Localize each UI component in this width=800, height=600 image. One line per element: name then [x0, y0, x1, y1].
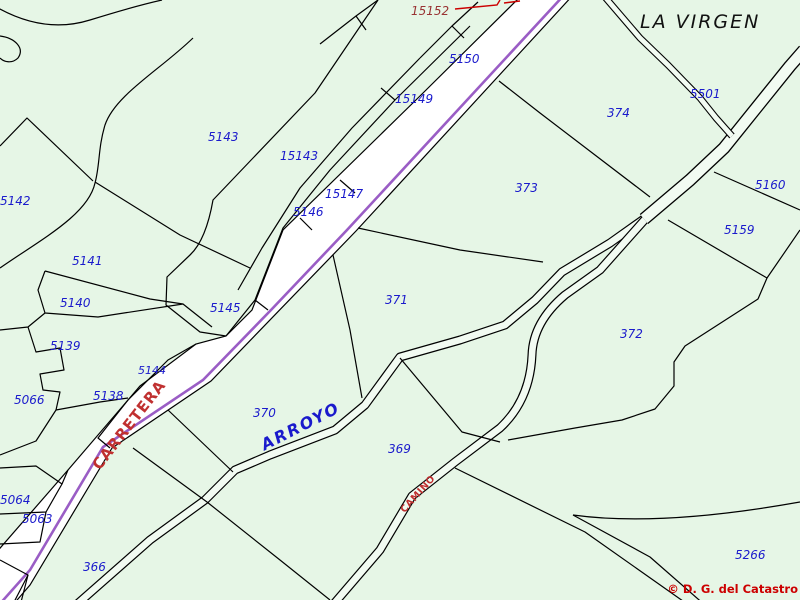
parcel-label-5140: 5140 [60, 296, 91, 310]
parcel-label-5144: 5144 [138, 364, 166, 377]
parcel-label-5266: 5266 [735, 548, 766, 562]
parcel-label-5146: 5146 [293, 205, 324, 219]
parcel-label-374: 374 [607, 106, 630, 120]
parcel-label-5145: 5145 [210, 301, 241, 315]
parcel-label-5501: 5501 [690, 87, 721, 101]
parcel-label-366: 366 [83, 560, 106, 574]
copyright-notice: © D. G. del Catastro [667, 582, 798, 596]
place-name-label: LA VIRGEN [640, 11, 760, 33]
parcel-label-370: 370 [253, 406, 276, 420]
parcel-label-5142: 5142 [0, 194, 31, 208]
parcel-label-369: 369 [388, 442, 411, 456]
parcel-label-15149: 15149 [395, 92, 433, 106]
parcel-label-15143: 15143 [280, 149, 318, 163]
parcel-label-373: 373 [515, 181, 538, 195]
parcel-label-15152: 15152 [411, 4, 449, 18]
parcel-label-5160: 5160 [755, 178, 786, 192]
parcel-label-5143: 5143 [208, 130, 239, 144]
parcel-label-15147: 15147 [325, 187, 364, 201]
cadastral-map-viewport: 5143 15143 15147 5146 5145 5144 5142 514… [0, 0, 800, 600]
cadastral-map-canvas[interactable]: 5143 15143 15147 5146 5145 5144 5142 514… [0, 0, 800, 600]
parcel-label-371: 371 [385, 293, 408, 307]
parcel-label-5159: 5159 [724, 223, 755, 237]
parcel-label-5066: 5066 [14, 393, 45, 407]
parcel-label-5138: 5138 [93, 389, 124, 403]
parcel-label-372: 372 [620, 327, 643, 341]
parcel-label-5139: 5139 [50, 339, 81, 353]
parcel-label-5064: 5064 [0, 493, 31, 507]
parcel-label-5150: 5150 [449, 52, 480, 66]
parcel-label-5063: 5063 [22, 512, 53, 526]
parcel-label-5141: 5141 [72, 254, 103, 268]
